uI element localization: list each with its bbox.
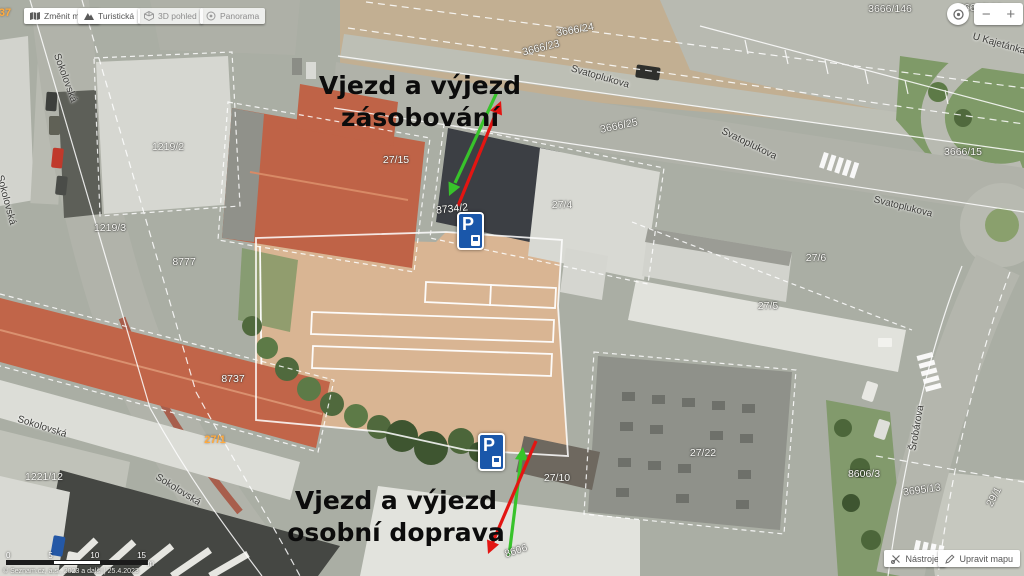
annotation-supply-line1: Vjezd a výjezd <box>319 70 521 102</box>
parking-sign-letter: P <box>462 214 474 234</box>
mountain-icon <box>84 11 94 21</box>
parking-meter-icon <box>471 235 480 246</box>
tools-label: Nástroje <box>905 554 939 564</box>
cube-icon <box>144 11 154 21</box>
map-viewport[interactable]: 3666/243666/233666/253666/1463666/162366… <box>0 0 1024 576</box>
scale-bar: 0 5 10 15 m <box>6 551 152 565</box>
parking-meter-icon <box>492 456 501 467</box>
map-icon <box>30 11 40 21</box>
tools-button[interactable]: Nástroje <box>884 550 946 567</box>
view-3d-label: 3D pohled <box>158 11 197 21</box>
pencil-icon <box>945 554 955 564</box>
parking-sign-bottom: P <box>478 433 505 471</box>
edit-map-label: Upravit mapu <box>959 554 1013 564</box>
panorama-button[interactable]: Panorama <box>200 8 265 24</box>
zoom-controls: − + <box>974 3 1023 25</box>
target-icon <box>952 8 965 21</box>
map-attribution: © Seznam.cz, a.s., 2023 a další | 25.4.2… <box>3 568 139 575</box>
tourist-map-label: Turistická <box>98 11 134 21</box>
scale-ticks: 0 5 10 15 <box>6 551 146 560</box>
edit-map-button[interactable]: Upravit mapu <box>938 550 1020 567</box>
parking-sign-letter: P <box>483 435 495 455</box>
scale-bar-segments <box>6 560 148 565</box>
zoom-out-button[interactable]: − <box>974 3 999 25</box>
panorama-label: Panorama <box>220 11 259 21</box>
annotation-personal-line1: Vjezd a výjezd <box>287 485 505 517</box>
tools-icon <box>891 554 901 564</box>
parking-sign-top: P <box>457 212 484 250</box>
panorama-icon <box>206 11 216 21</box>
locate-button[interactable] <box>947 3 969 25</box>
scale-unit: m <box>147 559 154 568</box>
tourist-map-button[interactable]: Turistická <box>78 8 140 24</box>
annotation-supply-line2: zásobování <box>319 102 521 134</box>
annotation-personal: Vjezd a výjezd osobní doprava <box>287 485 505 549</box>
annotation-supply: Vjezd a výjezd zásobování <box>319 70 521 134</box>
view-3d-button[interactable]: 3D pohled <box>138 8 203 24</box>
annotation-personal-line2: osobní doprava <box>287 517 505 549</box>
zoom-in-button[interactable]: + <box>999 3 1024 25</box>
